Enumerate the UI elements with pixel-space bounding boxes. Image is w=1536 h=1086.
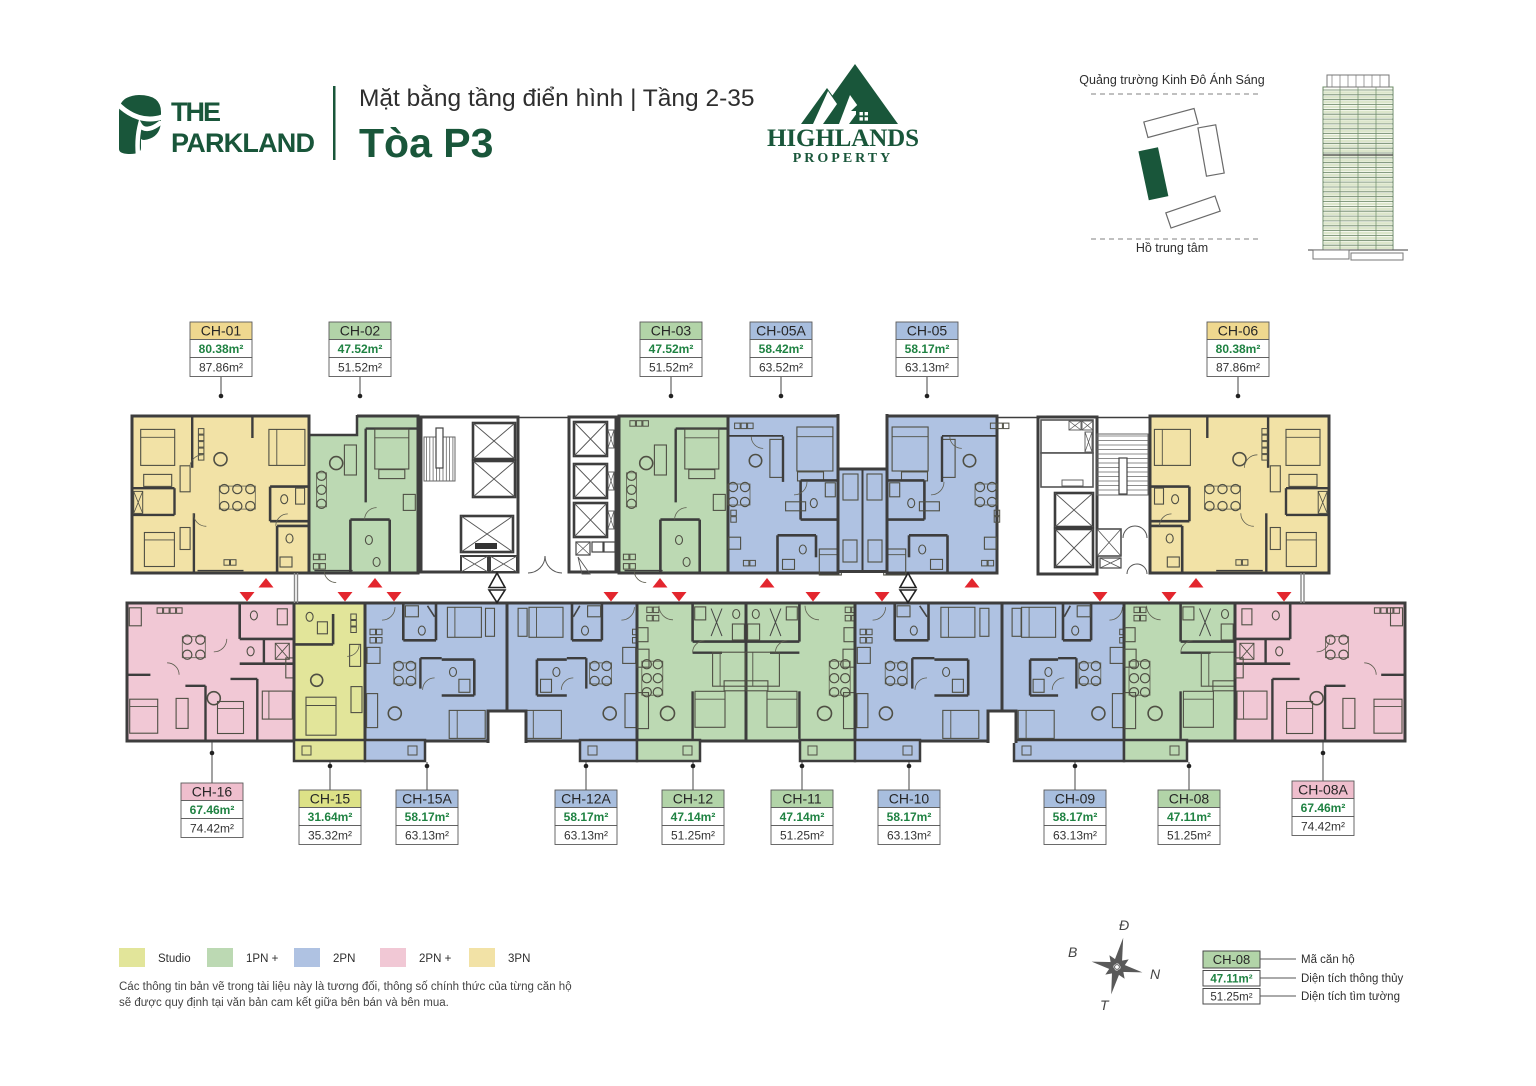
svg-text:N: N — [1150, 966, 1161, 982]
svg-text:PARKLAND: PARKLAND — [171, 128, 315, 158]
svg-text:51.52m²: 51.52m² — [338, 361, 382, 375]
svg-text:CH-08: CH-08 — [1169, 791, 1210, 807]
svg-text:67.46m²: 67.46m² — [190, 803, 235, 817]
svg-text:Studio: Studio — [158, 953, 191, 965]
svg-text:80.38m²: 80.38m² — [199, 342, 244, 356]
svg-text:47.14m²: 47.14m² — [780, 810, 825, 824]
svg-text:47.11m²: 47.11m² — [1167, 810, 1211, 824]
svg-text:CH-15A: CH-15A — [402, 791, 452, 807]
svg-text:sẽ được quy định tại văn bản c: sẽ được quy định tại văn bản cam kết giữ… — [119, 997, 449, 1009]
svg-text:58.42m²: 58.42m² — [759, 342, 804, 356]
svg-text:58.17m²: 58.17m² — [887, 810, 932, 824]
svg-text:Diện tích thông thủy: Diện tích thông thủy — [1301, 973, 1404, 985]
svg-text:63.13m²: 63.13m² — [887, 829, 931, 843]
svg-text:Quảng trường Kinh Đô Ánh Sáng: Quảng trường Kinh Đô Ánh Sáng — [1079, 72, 1264, 87]
svg-text:T: T — [1100, 997, 1110, 1013]
svg-text:CH-01: CH-01 — [201, 323, 242, 339]
svg-text:Đ: Đ — [1119, 917, 1129, 933]
svg-text:63.13m²: 63.13m² — [405, 829, 449, 843]
svg-text:58.17m²: 58.17m² — [405, 810, 450, 824]
svg-text:47.11m²: 47.11m² — [1210, 974, 1252, 986]
svg-text:CH-09: CH-09 — [1055, 791, 1096, 807]
svg-text:87.86m²: 87.86m² — [199, 361, 243, 375]
svg-text:63.13m²: 63.13m² — [1053, 829, 1097, 843]
svg-text:CH-08A: CH-08A — [1298, 782, 1348, 798]
svg-text:51.25m²: 51.25m² — [1210, 992, 1252, 1004]
svg-text:31.64m²: 31.64m² — [308, 810, 353, 824]
svg-text:47.52m²: 47.52m² — [338, 342, 383, 356]
svg-text:Mặt bằng tầng điển hình | Tầng: Mặt bằng tầng điển hình | Tầng 2-35 — [359, 85, 754, 112]
svg-text:CH-08: CH-08 — [1213, 952, 1251, 967]
svg-text:Các thông tin bản vẽ trong tài: Các thông tin bản vẽ trong tài liệu này … — [119, 981, 572, 993]
svg-text:HIGHLANDS: HIGHLANDS — [767, 125, 919, 152]
svg-text:1PN +: 1PN + — [246, 953, 279, 965]
svg-text:Diện tích tìm tường: Diện tích tìm tường — [1301, 991, 1400, 1003]
svg-text:58.17m²: 58.17m² — [905, 342, 950, 356]
svg-text:B: B — [1068, 944, 1077, 960]
svg-text:3PN: 3PN — [508, 953, 530, 965]
svg-text:35.32m²: 35.32m² — [308, 829, 352, 843]
svg-text:Hồ trung tâm: Hồ trung tâm — [1136, 241, 1208, 255]
svg-text:63.13m²: 63.13m² — [905, 361, 949, 375]
svg-text:51.52m²: 51.52m² — [649, 361, 693, 375]
svg-text:CH-02: CH-02 — [340, 323, 381, 339]
svg-text:74.42m²: 74.42m² — [1301, 820, 1345, 834]
svg-text:2PN +: 2PN + — [419, 953, 452, 965]
svg-text:CH-15: CH-15 — [310, 791, 351, 807]
svg-text:CH-06: CH-06 — [1218, 323, 1259, 339]
svg-text:Tòa P3: Tòa P3 — [359, 120, 493, 166]
svg-text:80.38m²: 80.38m² — [1216, 342, 1261, 356]
svg-text:47.14m²: 47.14m² — [671, 810, 716, 824]
svg-text:58.17m²: 58.17m² — [1053, 810, 1098, 824]
svg-text:THE: THE — [171, 97, 221, 127]
svg-text:CH-12A: CH-12A — [561, 791, 611, 807]
svg-text:CH-11: CH-11 — [782, 791, 822, 807]
svg-text:51.25m²: 51.25m² — [780, 829, 824, 843]
svg-text:51.25m²: 51.25m² — [671, 829, 715, 843]
svg-text:CH-03: CH-03 — [651, 323, 692, 339]
svg-text:2PN: 2PN — [333, 953, 355, 965]
svg-text:58.17m²: 58.17m² — [564, 810, 609, 824]
svg-text:47.52m²: 47.52m² — [649, 342, 694, 356]
svg-text:CH-05A: CH-05A — [756, 323, 806, 339]
svg-text:CH-10: CH-10 — [889, 791, 930, 807]
svg-text:CH-05: CH-05 — [907, 323, 948, 339]
svg-text:Mã căn hộ: Mã căn hộ — [1301, 954, 1355, 966]
svg-text:63.52m²: 63.52m² — [759, 361, 803, 375]
svg-text:CH-12: CH-12 — [673, 791, 714, 807]
svg-text:63.13m²: 63.13m² — [564, 829, 608, 843]
svg-text:74.42m²: 74.42m² — [190, 822, 234, 836]
svg-text:PROPERTY: PROPERTY — [793, 151, 894, 166]
svg-text:87.86m²: 87.86m² — [1216, 361, 1260, 375]
svg-text:51.25m²: 51.25m² — [1167, 829, 1211, 843]
svg-text:67.46m²: 67.46m² — [1301, 801, 1346, 815]
svg-text:CH-16: CH-16 — [192, 784, 233, 800]
